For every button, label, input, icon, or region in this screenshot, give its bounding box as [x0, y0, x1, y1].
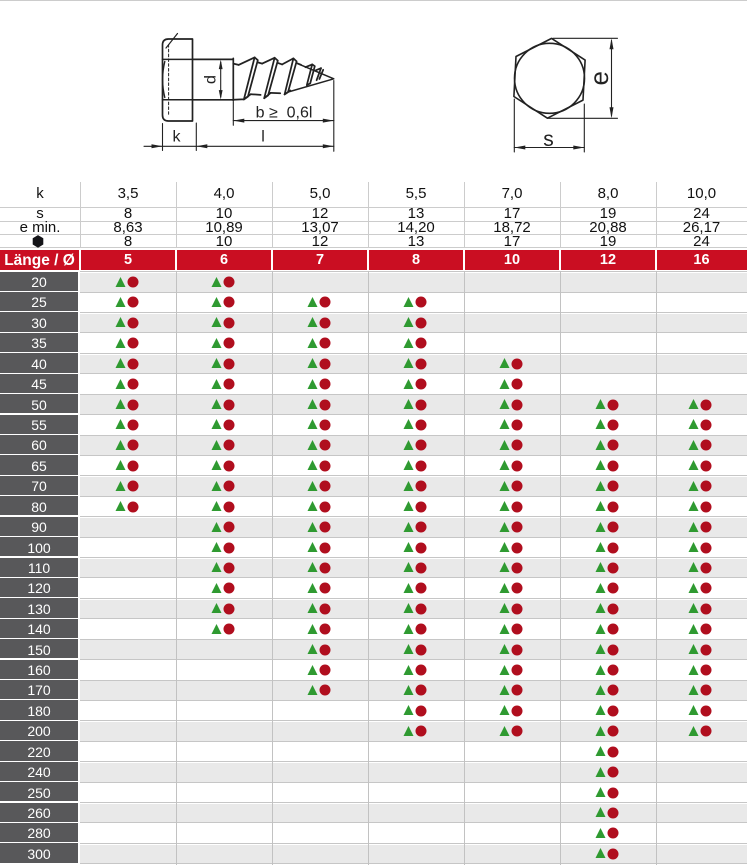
- svg-text:d: d: [203, 75, 220, 84]
- svg-text:l: l: [261, 129, 265, 146]
- svg-text:e: e: [584, 71, 614, 85]
- svg-text:k: k: [173, 129, 182, 146]
- svg-text:s: s: [543, 128, 554, 151]
- svg-text:b ≥ 0,6l: b ≥ 0,6l: [256, 105, 313, 122]
